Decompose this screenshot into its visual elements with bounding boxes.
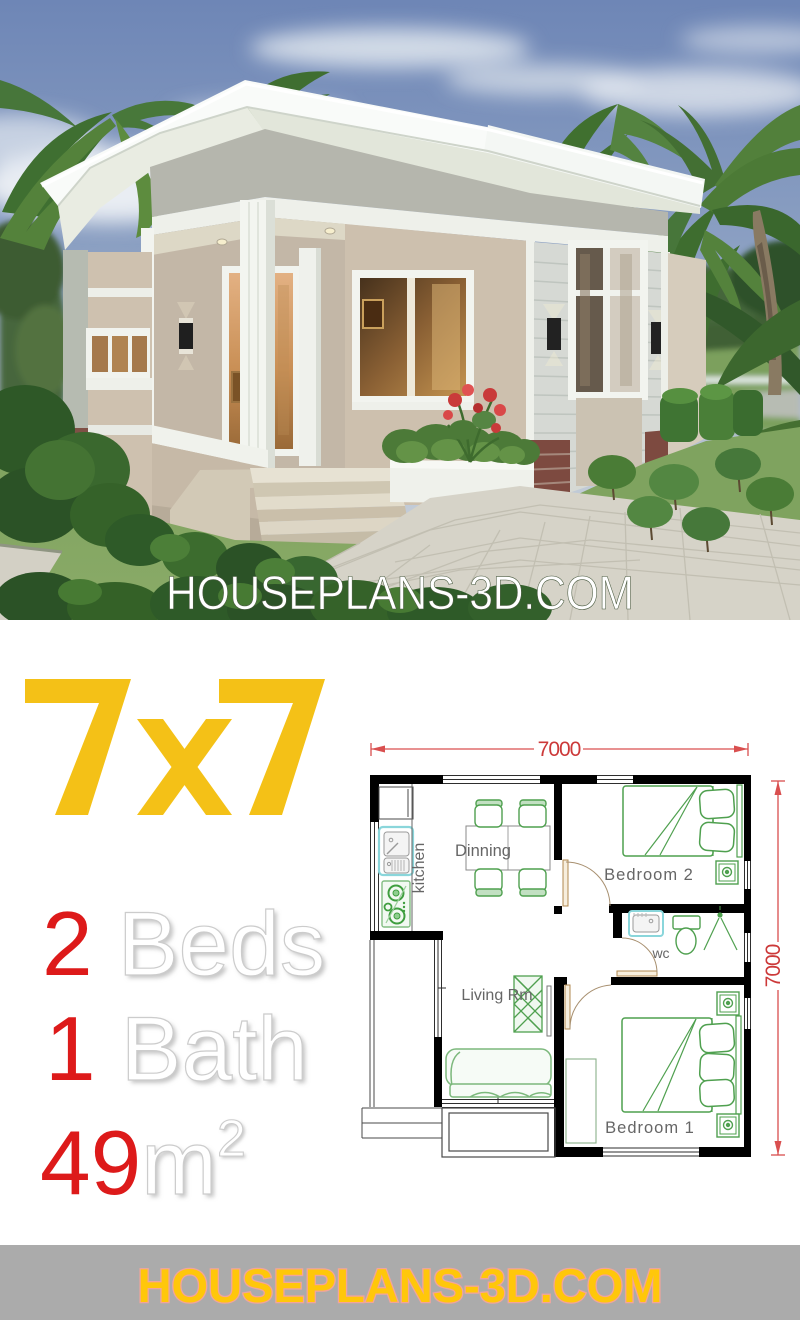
svg-text:HOUSEPLANS-3D.COM: HOUSEPLANS-3D.COM: [166, 568, 634, 620]
svg-text:HOUSEPLANS-3D.COM: HOUSEPLANS-3D.COM: [138, 1259, 663, 1312]
svg-text:wc: wc: [651, 945, 669, 961]
svg-text:Bedroom 2: Bedroom 2: [604, 866, 694, 884]
svg-text:Living Rm: Living Rm: [461, 987, 532, 1004]
svg-text:kitchen: kitchen: [411, 843, 428, 894]
svg-text:Bedroom 1: Bedroom 1: [605, 1119, 695, 1137]
svg-text:7000: 7000: [538, 738, 581, 761]
svg-text:Dinning: Dinning: [455, 842, 511, 860]
svg-text:7000: 7000: [762, 944, 785, 987]
